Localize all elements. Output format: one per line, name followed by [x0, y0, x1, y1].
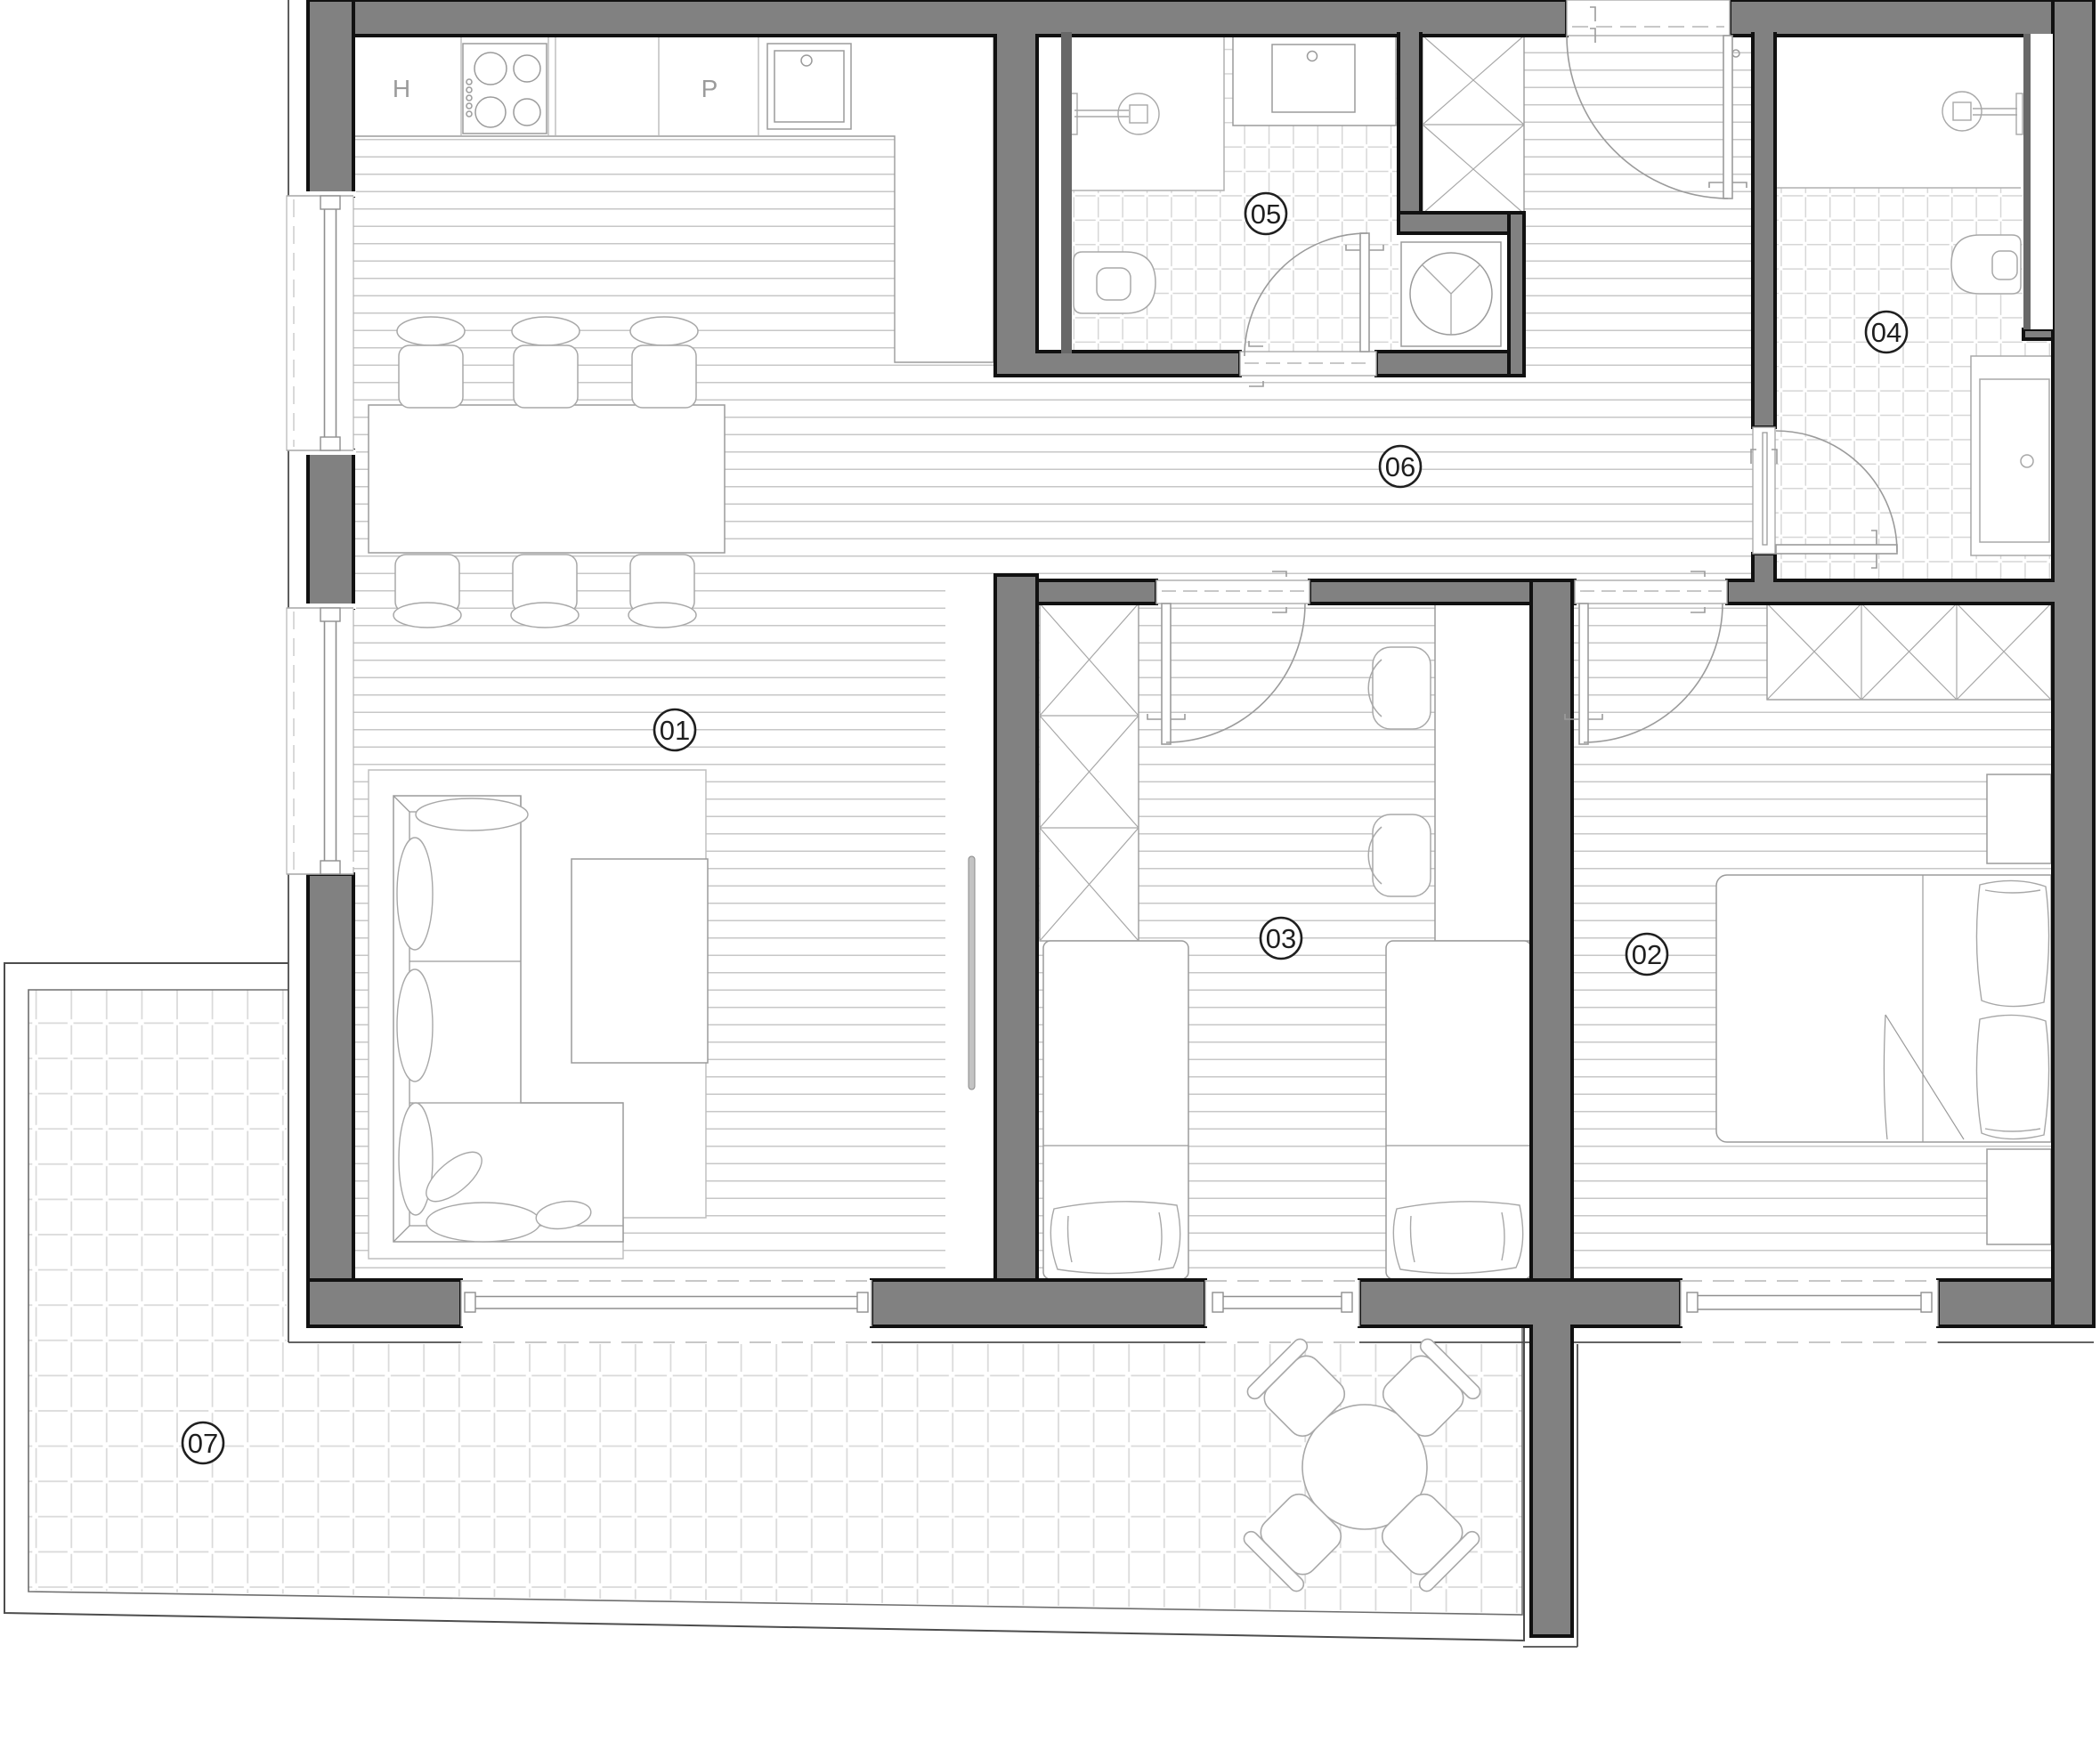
svg-text:01: 01: [660, 715, 690, 746]
svg-text:P: P: [701, 75, 718, 102]
svg-text:07: 07: [188, 1428, 218, 1459]
svg-text:03: 03: [1266, 923, 1296, 954]
svg-text:06: 06: [1385, 451, 1415, 482]
svg-text:04: 04: [1871, 317, 1901, 348]
svg-text:02: 02: [1632, 939, 1662, 970]
svg-text:H: H: [393, 75, 410, 102]
svg-text:05: 05: [1251, 199, 1281, 230]
